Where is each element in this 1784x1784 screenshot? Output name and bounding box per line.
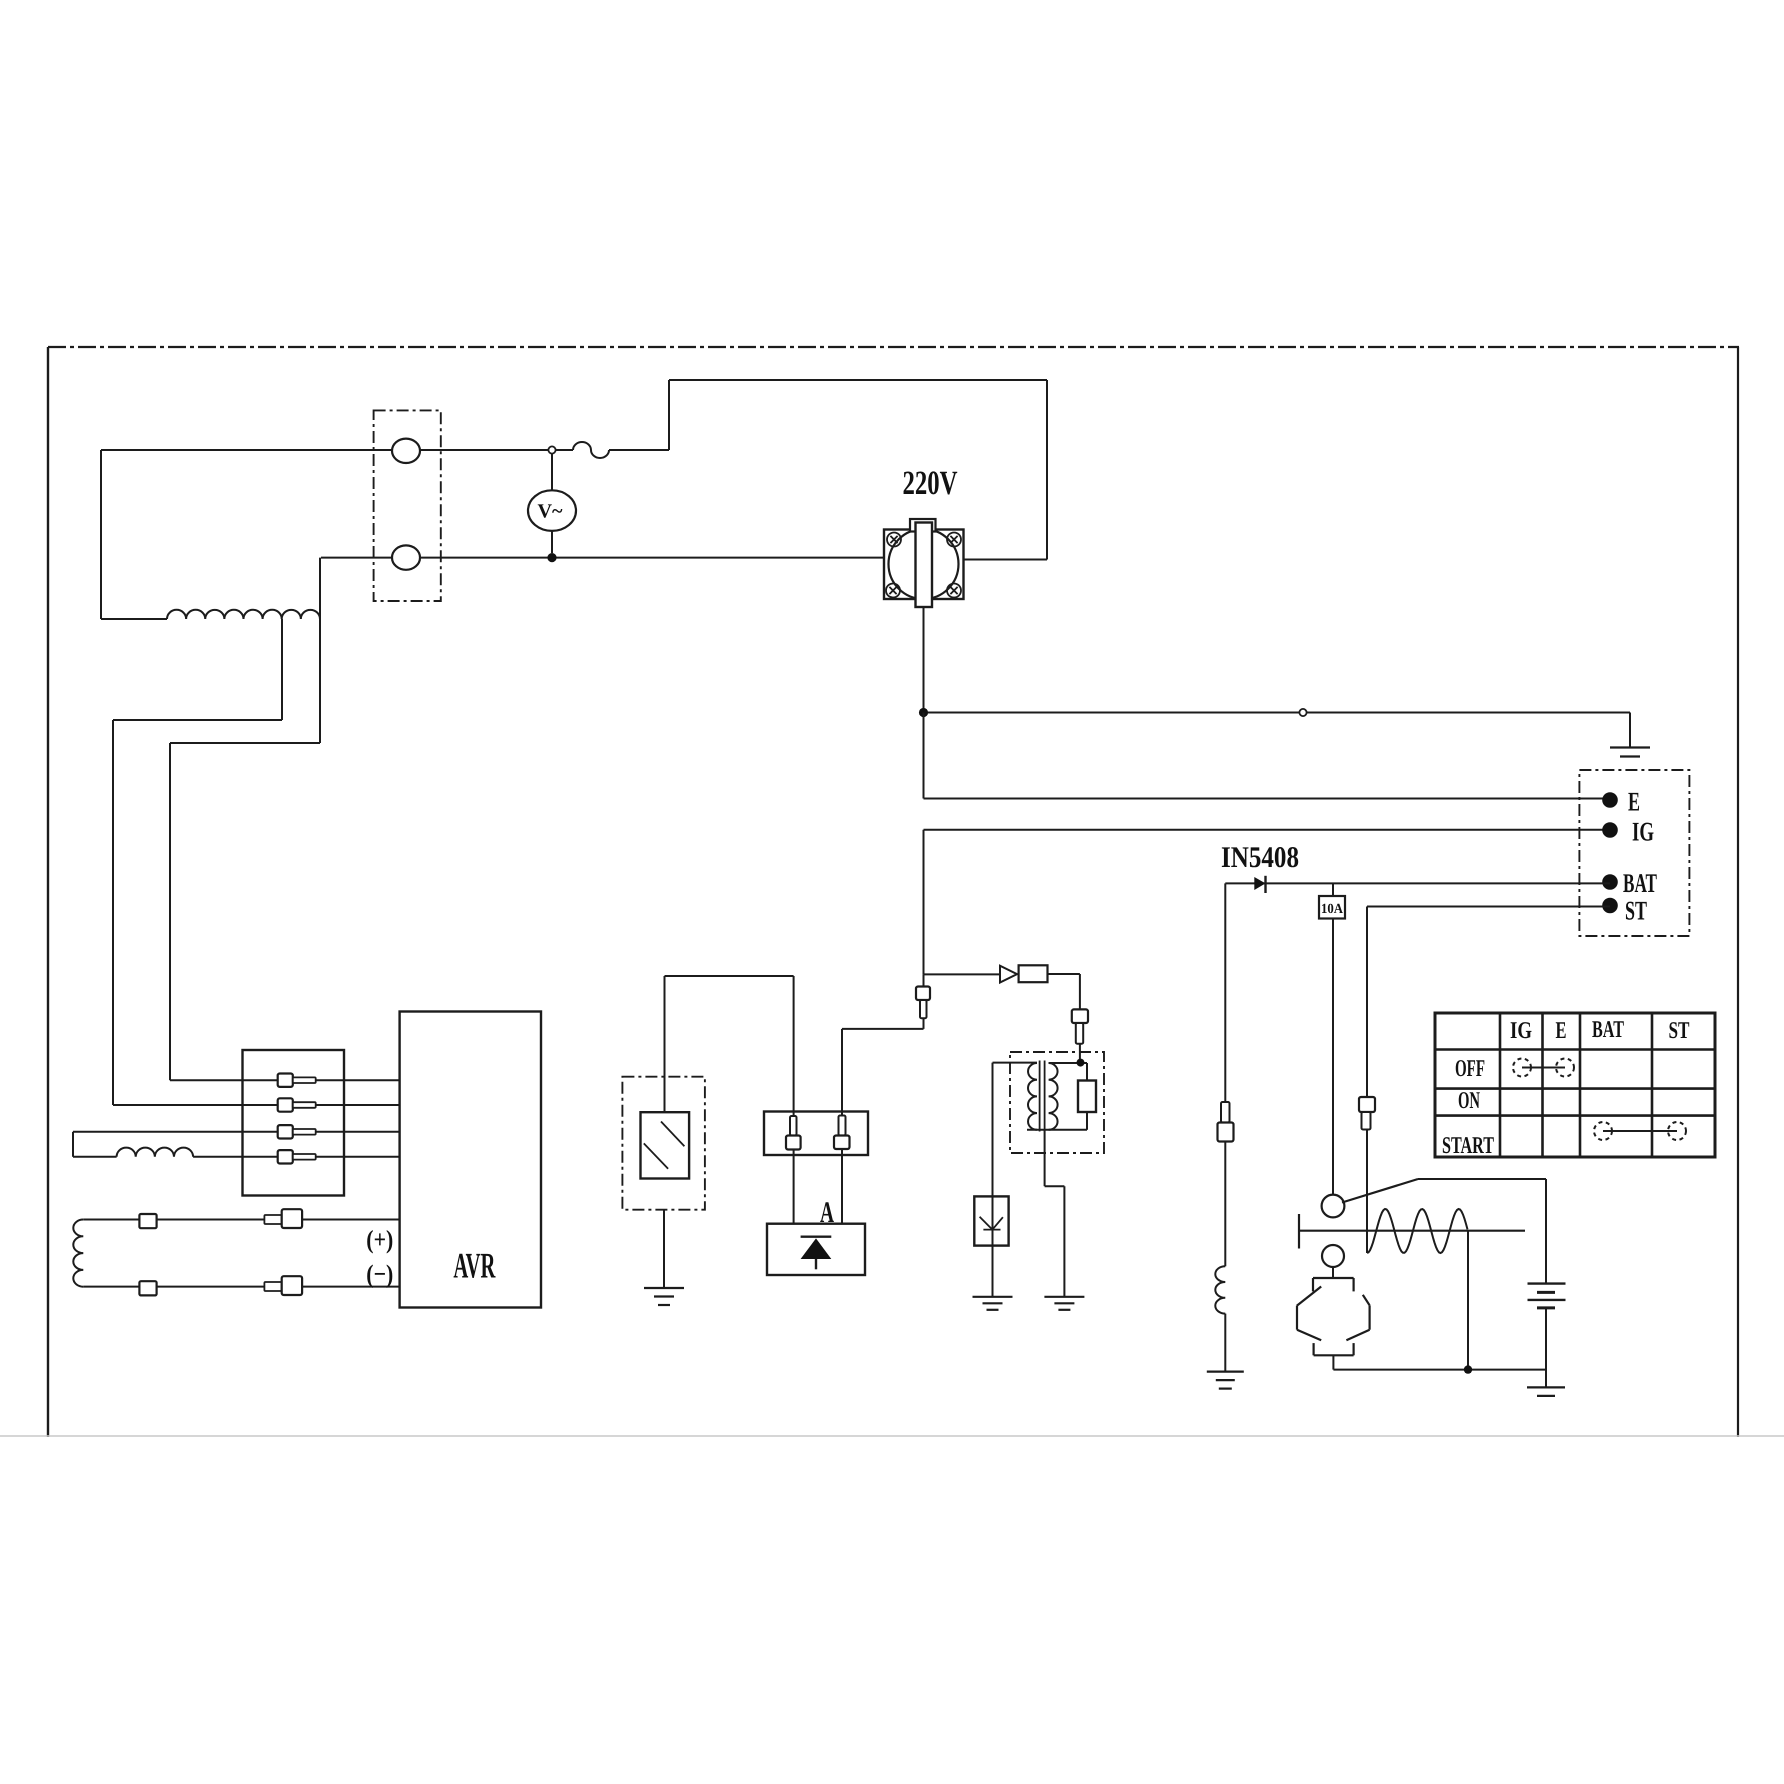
svg-text:(+): (+) [366, 1225, 393, 1254]
svg-text:AVR: AVR [453, 1246, 496, 1286]
svg-text:IG: IG [1632, 817, 1654, 847]
svg-text:OFF: OFF [1455, 1056, 1485, 1082]
svg-text:V~: V~ [538, 501, 564, 523]
svg-text:BAT: BAT [1623, 868, 1657, 898]
svg-text:IN5408: IN5408 [1221, 841, 1299, 874]
svg-text:IG: IG [1510, 1018, 1532, 1044]
svg-text:E: E [1628, 787, 1640, 817]
svg-text:ST: ST [1625, 896, 1647, 926]
svg-text:START: START [1442, 1133, 1494, 1159]
svg-text:ON: ON [1458, 1088, 1480, 1114]
svg-text:(−): (−) [366, 1260, 393, 1289]
svg-text:220V: 220V [903, 465, 958, 502]
svg-text:E: E [1556, 1018, 1567, 1044]
svg-text:ST: ST [1669, 1018, 1690, 1044]
svg-text:BAT: BAT [1592, 1017, 1624, 1043]
svg-text:10A: 10A [1321, 902, 1344, 917]
